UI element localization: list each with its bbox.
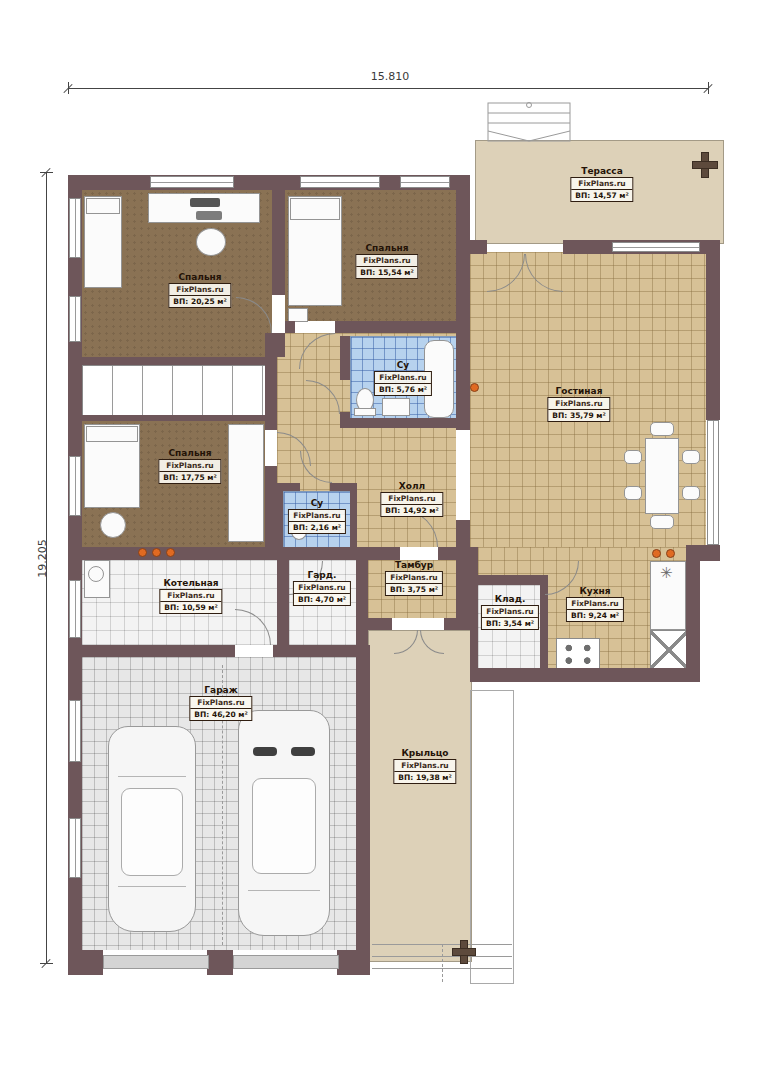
vent-dot [652, 549, 661, 558]
room-label-kitchen: Кухня FixPlans.ru ВП: 9,24 м² [566, 586, 624, 622]
window [69, 296, 81, 342]
dining-chair [682, 450, 700, 464]
brand-watermark: FixPlans.ru [289, 510, 345, 522]
vent-dot [152, 548, 161, 557]
sink [382, 398, 410, 416]
wall-segment [470, 585, 478, 668]
room-name: Тамбур [385, 560, 443, 570]
drain-cross-icon [692, 152, 716, 176]
dining-chair [624, 486, 642, 500]
room-area: ВП: 17,75 м² [159, 472, 220, 483]
window [612, 242, 700, 252]
brand-watermark: FixPlans.ru [386, 572, 442, 584]
wall-segment [207, 950, 233, 975]
car-rear-window [118, 886, 187, 887]
room-label-terrace: Терасса FixPlans.ru ВП: 14,57 м² [570, 166, 633, 202]
room-area: ВП: 5,76 м² [375, 384, 431, 395]
brand-watermark: FixPlans.ru [548, 398, 609, 410]
vent-dot [138, 548, 147, 557]
room-area: ВП: 10,59 м² [160, 602, 221, 613]
porch-canopy-outline [470, 690, 514, 984]
brand-watermark: FixPlans.ru [482, 606, 538, 618]
wall-segment [356, 645, 370, 965]
car-window-tint [291, 747, 314, 756]
floor-porch [368, 630, 472, 962]
room-name: Су [374, 360, 432, 370]
wall-segment [706, 240, 720, 420]
room-label-porch: Крыльцо FixPlans.ru ВП: 19,38 м² [393, 748, 456, 784]
room-area: ВП: 4,70 м² [294, 594, 350, 605]
stove [556, 638, 600, 670]
wall-segment [686, 561, 700, 668]
brand-watermark: FixPlans.ru [381, 493, 442, 505]
brand-watermark: FixPlans.ru [567, 598, 623, 610]
window [300, 176, 380, 188]
pillow [290, 198, 340, 220]
dimension-ext [68, 82, 69, 94]
wall-segment [356, 547, 368, 657]
brand-watermark: FixPlans.ru [375, 372, 431, 384]
room-name: Спальня [168, 272, 231, 282]
wall-segment [265, 466, 277, 547]
room-label-storage: Клад. FixPlans.ru ВП: 3,54 м² [481, 594, 539, 630]
room-name: Котельная [159, 578, 222, 588]
fridge-icon [650, 630, 688, 670]
wall-segment [82, 415, 265, 421]
wall-segment [272, 190, 285, 295]
room-area: ВП: 46,20 м² [190, 709, 251, 720]
room-area: ВП: 3,75 м² [386, 584, 442, 595]
brand-watermark: FixPlans.ru [169, 284, 230, 296]
room-name: Кухня [566, 586, 624, 596]
room-label-wardrobe: Гард. FixPlans.ru ВП: 4,70 м² [293, 570, 351, 606]
wall-segment [82, 645, 235, 657]
wall-segment [686, 545, 720, 561]
window [400, 176, 450, 188]
room-label-boiler: Котельная FixPlans.ru ВП: 10,59 м² [159, 578, 222, 614]
room-area: ВП: 15,54 м² [356, 267, 417, 278]
room-name: Клад. [481, 594, 539, 604]
room-label-bathroom-small: Су FixPlans.ru ВП: 2,16 м² [288, 498, 346, 534]
chair [100, 512, 126, 538]
room-area: ВП: 19,38 м² [394, 772, 455, 783]
brand-watermark: FixPlans.ru [356, 255, 417, 267]
nightstand [288, 308, 308, 322]
dining-chair [624, 450, 642, 464]
vent-dot [166, 548, 175, 557]
room-label-living: Гостиная FixPlans.ru ВП: 35,79 м² [547, 386, 610, 422]
terrace-stairs-icon [487, 102, 571, 142]
boiler-dial-icon [88, 566, 104, 582]
car-rear-window [248, 890, 320, 891]
closet [228, 424, 264, 542]
wall-segment [350, 483, 357, 547]
window [69, 198, 81, 258]
vent-dot [470, 383, 479, 392]
room-area: ВП: 3,54 м² [482, 618, 538, 629]
wall-segment [368, 618, 392, 630]
chair [196, 228, 226, 256]
dimension-label-top: 15.810 [358, 70, 422, 83]
vent-dot [666, 549, 675, 558]
brand-watermark: FixPlans.ru [190, 697, 251, 709]
wall-segment [456, 520, 470, 547]
wall-segment [68, 547, 400, 560]
wall-segment [277, 560, 289, 645]
car [108, 726, 196, 932]
car-roof [121, 788, 183, 876]
wall-segment [277, 483, 283, 547]
room-area: ВП: 35,79 м² [548, 410, 609, 421]
dimension-ext [40, 963, 53, 964]
wall-segment [285, 321, 295, 333]
room-name: Терасса [570, 166, 633, 176]
dimension-ext [708, 82, 709, 94]
dining-chair [682, 486, 700, 500]
room-name: Гард. [293, 570, 351, 580]
dining-chair [650, 422, 674, 436]
room-label-hall: Холл FixPlans.ru ВП: 14,92 м² [380, 481, 443, 517]
car-roof [252, 778, 317, 874]
wall-segment [265, 333, 285, 357]
wall-segment [470, 668, 700, 682]
room-label-bathroom-main: Су FixPlans.ru ВП: 5,76 м² [374, 360, 432, 396]
room-name: Крыльцо [393, 748, 456, 758]
brand-watermark: FixPlans.ru [571, 178, 632, 190]
room-label-tambour: Тамбур FixPlans.ru ВП: 3,75 м² [385, 560, 443, 596]
dining-table [645, 438, 679, 514]
pillow [86, 198, 120, 214]
porch-step-dash [442, 944, 443, 982]
room-name: Гостиная [547, 386, 610, 396]
pillow [86, 426, 138, 442]
room-label-bedroom2: Спальня FixPlans.ru ВП: 15,54 м² [355, 243, 418, 279]
toilet-tank [354, 408, 376, 416]
car [238, 710, 330, 936]
kitchen-sink-icon: ✳ [660, 566, 673, 581]
brand-watermark: FixPlans.ru [394, 760, 455, 772]
brand-watermark: FixPlans.ru [159, 460, 220, 472]
room-name: Спальня [355, 243, 418, 253]
wall-segment [456, 240, 487, 254]
dimension-line-top [68, 88, 708, 89]
window [707, 420, 719, 545]
car-window-tint [253, 747, 276, 756]
room-label-bedroom3: Спальня FixPlans.ru ВП: 17,75 м² [158, 448, 221, 484]
printer-icon [196, 211, 222, 220]
room-label-bedroom1: Спальня FixPlans.ru ВП: 20,25 м² [168, 272, 231, 308]
brand-watermark: FixPlans.ru [160, 590, 221, 602]
garage-gate [233, 955, 339, 969]
wall-segment [335, 321, 456, 333]
wall-segment [340, 336, 350, 380]
window [69, 580, 81, 638]
window [69, 818, 81, 878]
drain-cross-icon [452, 940, 474, 962]
wall-segment [265, 357, 277, 430]
room-name: Гараж [189, 685, 252, 695]
wall-segment [68, 950, 103, 975]
wall-segment [337, 950, 370, 975]
dining-chair [650, 515, 674, 529]
window [150, 176, 234, 188]
room-area: ВП: 14,57 м² [571, 190, 632, 201]
car-windshield [118, 776, 187, 777]
wall-segment [340, 418, 466, 428]
brand-watermark: FixPlans.ru [294, 582, 350, 594]
wall-segment [456, 175, 470, 430]
wall-segment [470, 575, 548, 585]
room-area: ВП: 9,24 м² [567, 610, 623, 621]
room-area: ВП: 20,25 м² [169, 296, 230, 307]
wall-segment [82, 357, 265, 365]
room-area: ВП: 2,16 м² [289, 522, 345, 533]
window [69, 700, 81, 762]
room-area: ВП: 14,92 м² [381, 505, 442, 516]
dimension-label-left: 19.205 [36, 527, 49, 591]
built-in-wardrobe [82, 365, 267, 417]
garage-gate [103, 955, 209, 969]
room-name: Су [288, 498, 346, 508]
window [69, 456, 81, 516]
monitor-icon [190, 198, 220, 207]
dimension-ext [40, 172, 53, 173]
room-label-garage: Гараж FixPlans.ru ВП: 46,20 м² [189, 685, 252, 721]
wall-segment [444, 618, 470, 630]
room-name: Спальня [158, 448, 221, 458]
floor-plan: 15.810 19.205 [0, 0, 763, 1080]
room-name: Холл [380, 481, 443, 491]
